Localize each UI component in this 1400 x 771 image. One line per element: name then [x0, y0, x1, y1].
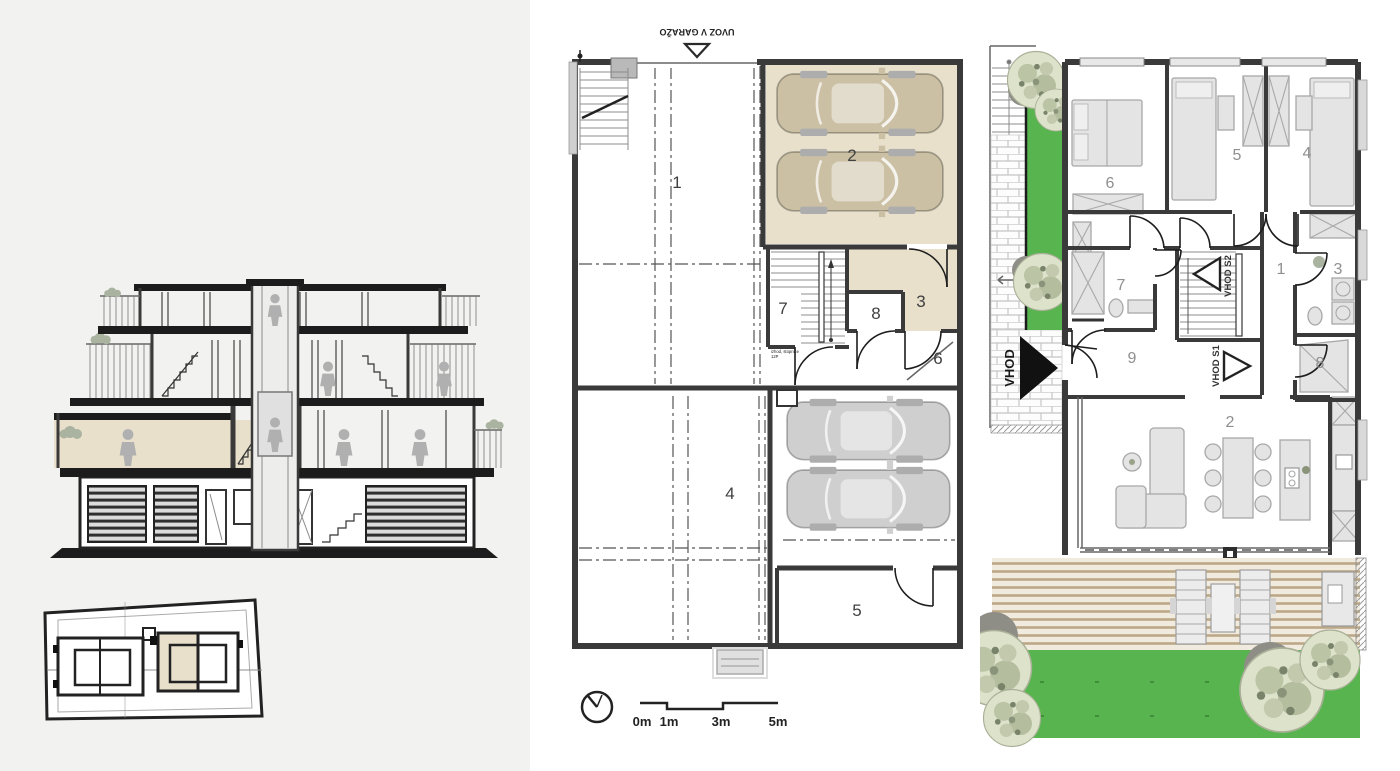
ground-room-label-3: 3 [1334, 261, 1343, 278]
ground-room-label-4: 4 [1303, 145, 1312, 162]
site-plan [45, 600, 262, 719]
basement-room-label-3: 3 [916, 292, 925, 311]
ramp-label: UVOZ V GARAŽO [659, 27, 734, 38]
basement-room-label-2: 2 [847, 146, 856, 165]
threshold-hatch [991, 425, 1066, 433]
ground-room-label-7: 7 [1117, 277, 1126, 294]
ramp-arrow-icon [685, 44, 709, 57]
ground-room-label-9: 9 [1128, 350, 1137, 367]
basement-room-label-7: 7 [778, 299, 787, 318]
stair-note: 12P [771, 354, 779, 359]
basement-room-label-8: 8 [871, 304, 880, 323]
ground-room-label-5: 5 [1233, 147, 1242, 164]
ground-floor-plan: VHOD [980, 0, 1400, 771]
column [777, 390, 797, 406]
ground-room-label-6: 6 [1106, 175, 1115, 192]
scale-label-1m: 1m [660, 714, 679, 729]
basement-room-label-5: 5 [852, 601, 861, 620]
section-panel [0, 0, 530, 771]
scale-bar: 0m 1m 3m 5m [633, 703, 788, 729]
ground-room-label-2: 2 [1226, 414, 1235, 431]
scale-label-0m: 0m [633, 714, 652, 729]
north-indicator-icon [582, 692, 612, 722]
scale-label-3m: 3m [712, 714, 731, 729]
deck-edge-hatch [1356, 558, 1366, 650]
drawing-sheet: UVOZ V GARAŽO izhod, stopnice 12P [0, 0, 1400, 771]
ground-room-label-1: 1 [1277, 261, 1286, 278]
scale-label-5m: 5m [769, 714, 788, 729]
basement-room-label-6: 6 [933, 349, 942, 368]
entrance-label-s2: VHOD S2 [1223, 255, 1234, 297]
basement-plan: UVOZ V GARAŽO izhod, stopnice 12P [555, 0, 985, 771]
entrance-label-main: VHOD [1002, 349, 1017, 387]
entrance-label-s1: VHOD S1 [1211, 344, 1222, 386]
basement-room-label-4: 4 [725, 484, 734, 503]
ground-room-label-8: 8 [1316, 355, 1325, 372]
light-well [713, 648, 767, 678]
basement-room-label-1: 1 [672, 173, 681, 192]
